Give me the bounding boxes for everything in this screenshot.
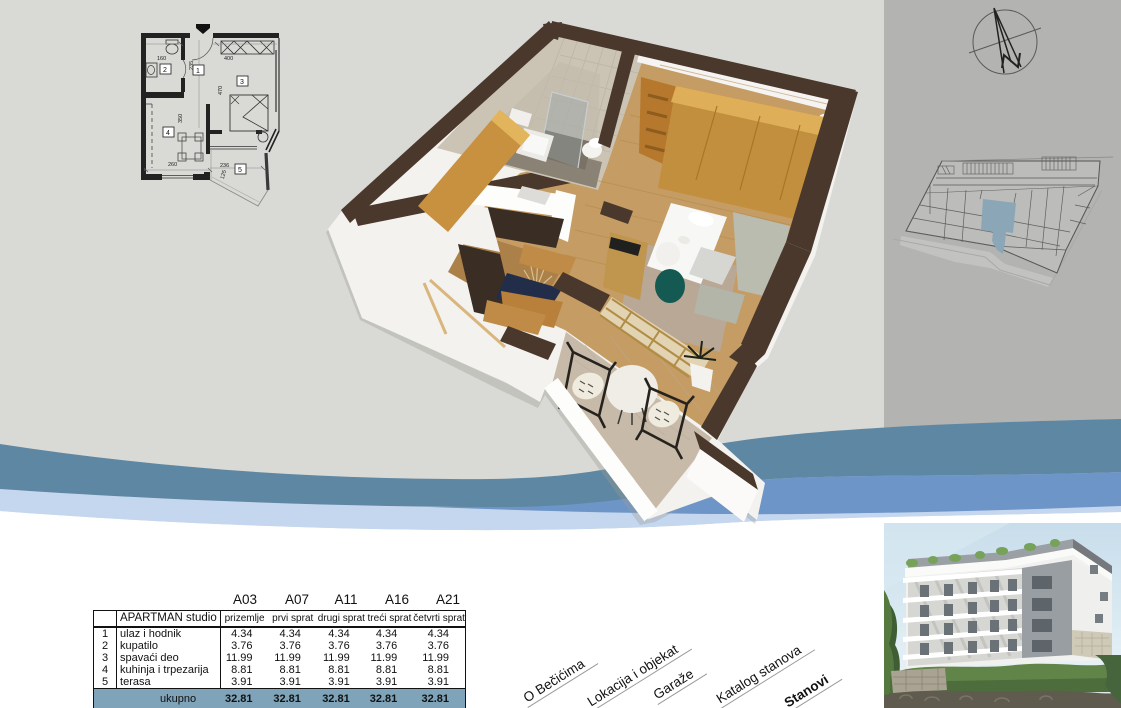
svg-text:235: 235: [189, 61, 195, 70]
svg-text:4: 4: [166, 130, 170, 137]
svg-text:1: 1: [196, 68, 200, 75]
svg-text:2: 2: [163, 67, 167, 74]
svg-text:3: 3: [240, 79, 244, 86]
svg-text:160: 160: [157, 56, 166, 62]
svg-text:125: 125: [220, 170, 228, 180]
svg-text:5: 5: [238, 167, 242, 174]
svg-text:400: 400: [224, 56, 233, 62]
svg-text:260: 260: [168, 162, 177, 168]
svg-text:236: 236: [220, 163, 229, 169]
svg-text:350: 350: [178, 114, 184, 123]
svg-text:470: 470: [218, 86, 224, 95]
